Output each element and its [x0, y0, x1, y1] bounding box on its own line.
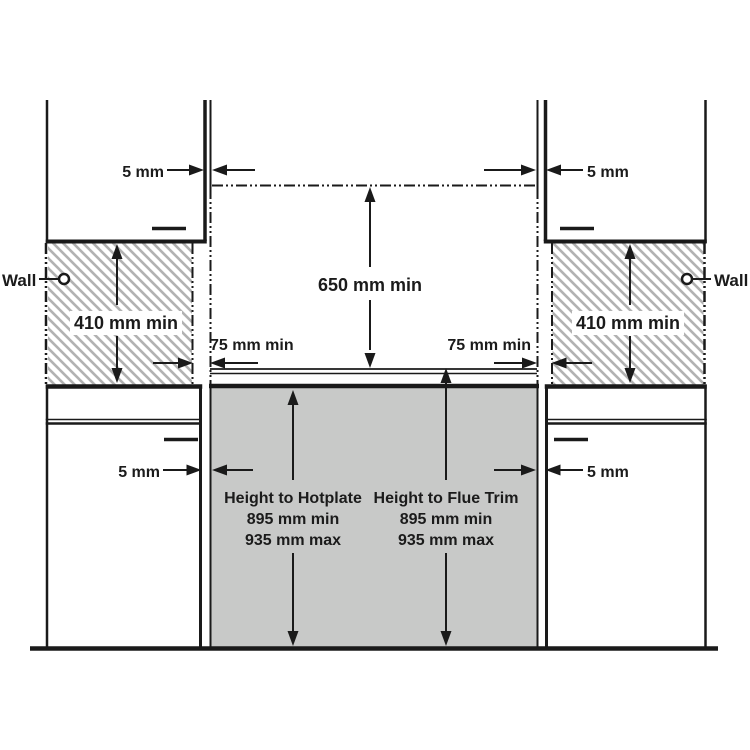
height-to-hotplate-title: Height to Hotplate: [224, 490, 362, 507]
height-to-flue-trim-min: 895 mm min: [400, 511, 492, 528]
dimension-650: 650 mm min: [318, 187, 422, 368]
clearance-650-label: 650 mm min: [318, 275, 422, 295]
base-cabinet-left: [46, 385, 203, 648]
gap-5mm-top-left-label: 5 mm: [122, 164, 164, 181]
gap-5mm-bottom-left-label: 5 mm: [118, 464, 160, 481]
clearance-75-left-label: 75 mm min: [210, 337, 294, 354]
clearance-75-right-label: 75 mm min: [447, 337, 531, 354]
arrowhead-right: [522, 358, 537, 369]
arrowhead-left: [212, 165, 227, 176]
wall-marker-circle: [59, 274, 69, 284]
arrowhead-up: [441, 368, 452, 383]
height-to-flue-trim-title: Height to Flue Trim: [374, 490, 519, 507]
height-to-flue-trim-max: 935 mm max: [398, 532, 494, 549]
height-to-hotplate-max: 935 mm max: [245, 532, 341, 549]
arrowhead-up: [365, 187, 376, 202]
gap-5mm-top-right-label: 5 mm: [587, 164, 629, 181]
arrowhead-left: [546, 165, 561, 176]
wall-left-label: Wall: [2, 271, 36, 290]
clearance-410-left-label: 410 mm min: [74, 313, 178, 333]
gap-5mm-top-right: 5 mm: [484, 164, 629, 181]
gap-5mm-bottom-right-label: 5 mm: [587, 464, 629, 481]
arrowhead-right: [189, 165, 204, 176]
base-cabinet-right: [545, 385, 707, 648]
wall-marker-circle: [682, 274, 692, 284]
arrowhead-down: [365, 353, 376, 368]
height-to-hotplate-min: 895 mm min: [247, 511, 339, 528]
arrowhead-right: [521, 165, 536, 176]
clearance-410-right-label: 410 mm min: [576, 313, 680, 333]
arrowhead-left: [210, 358, 225, 369]
installation-clearance-diagram: 650 mm min 410 mm min 410 mm min 75 mm m…: [0, 0, 750, 750]
gap-5mm-top-left: 5 mm: [122, 164, 255, 181]
wall-right-label: Wall: [714, 271, 748, 290]
